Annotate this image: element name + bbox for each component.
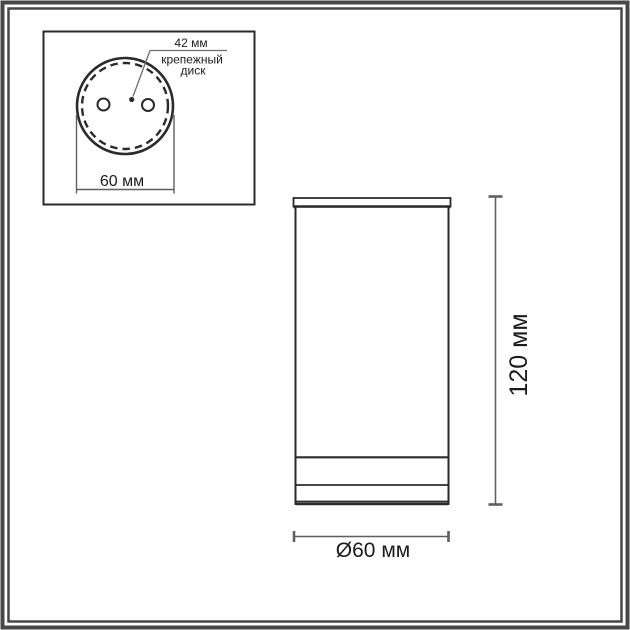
inset-linework: [44, 32, 255, 205]
disk-diameter-label: 42 мм: [174, 36, 207, 50]
cylinder-top-cap: [294, 198, 451, 207]
side-view: 120 мм Ø60 мм: [294, 197, 534, 563]
technical-drawing-canvas: 42 мм крепежный диск 60 мм: [0, 0, 630, 630]
inset-box: [44, 32, 255, 205]
diameter-dimension-label: Ø60 мм: [336, 539, 410, 562]
height-dimension-label: 120 мм: [505, 313, 533, 396]
cylinder-body: [296, 207, 449, 504]
technical-drawing-page: 42 мм крепежный диск 60 мм: [0, 0, 630, 630]
height-dimension: [489, 197, 503, 505]
top-view-inset: 42 мм крепежный диск 60 мм: [44, 32, 255, 205]
base-width-dimension-label: 60 мм: [100, 173, 144, 190]
cylinder-linework: [294, 198, 451, 504]
disk-name-label-line2: диск: [181, 64, 207, 78]
disk-center-dot: [129, 97, 134, 102]
